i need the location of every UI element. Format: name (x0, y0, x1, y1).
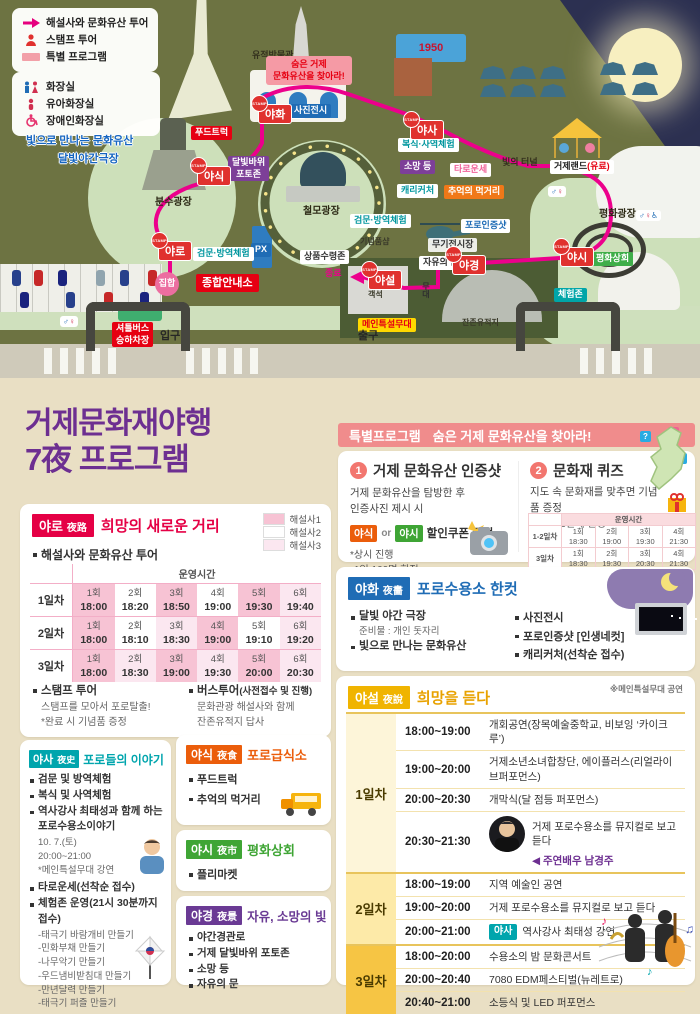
yahwa-section: 야화夜畵 포로수용소 한컷 달빛 야간 극장준비물 : 개인 돗자리빛으로 만나… (336, 567, 695, 671)
map-label: 소망 등 (400, 160, 435, 174)
number-2-icon: 2 (530, 462, 547, 479)
yaseol-program-line: 거제소년소녀합창단, 에이플러스(리얼라이브퍼포먼스) (489, 755, 681, 783)
yaro-corner-cell (30, 564, 73, 584)
session-label: 2회 (596, 549, 629, 558)
legend-facility-items: 화장실유아화장실장애인화장실 (22, 79, 150, 129)
legend-swatch (263, 526, 285, 538)
gift-icon (667, 493, 687, 513)
session-time: 20:30 (280, 666, 321, 682)
yaro-label-row: 1일차1회2회3회4회5회6회 (30, 584, 321, 601)
stamp-tour-title: 스탬프 투어 (32, 682, 178, 698)
session-time: 21:30 (663, 537, 696, 546)
yahwa-section-badge: 야화夜畵 (348, 577, 410, 600)
legend-swatch (263, 539, 285, 551)
session-label: 5회 (238, 617, 279, 634)
map-label: 상품수령존 (300, 250, 349, 264)
yasik-section-badge: 야식夜食 (186, 745, 242, 764)
yasik-section: 야식夜食 포로급식소 푸드트럭추억의 먹거리 (176, 735, 331, 825)
venue-map: 1950 ♂♀ ♂♀ ♂♀ ♂♀♿ 해설사와 문화유산 투어스탬프 투어특별 프… (0, 0, 700, 378)
map-label: 빛으로 만나는 문화유산 (26, 134, 133, 148)
quiz-session-cell: 4회21:30 (662, 526, 696, 548)
map-label: 사진전시 (290, 104, 331, 118)
person-icon (22, 34, 40, 46)
bus-tour-line2: 잔존유적지 답사 (197, 715, 328, 730)
session-time: 18:00 (73, 600, 115, 617)
yaro-time-row: 18:0018:1018:3019:0019:1019:20 (30, 633, 321, 650)
pinwheel-icon (132, 935, 168, 981)
map-stamp: STAMP야경 (452, 255, 486, 275)
yagyeong-section-title: 자유, 소망의 빛 (247, 906, 326, 925)
yaseol-time: 20:00~21:00 (396, 926, 489, 938)
yaro-time-row: 18:0018:3019:0019:3020:0020:30 (30, 666, 321, 682)
map-label: 입구 (160, 329, 180, 343)
wheelchair-icon (22, 114, 40, 127)
session-label: 1회 (73, 617, 115, 634)
map-label: 추억의 먹거리 (444, 185, 504, 199)
special-header-title: 숨은 거제 문화유산을 찾아라! (433, 426, 592, 445)
map-label: 달빛야간극장 (58, 152, 119, 166)
svg-text:♪: ♪ (601, 914, 607, 928)
yaseol-stage-note: ※메인특설무대 공연 (610, 683, 683, 695)
yahwa-item: 캐리커처(선착순 접수) (514, 646, 674, 665)
bus-tour-note: 버스투어(사전접수 및 진행) 문화관광 해설사와 함께 잔존유적지 답사 (188, 682, 328, 730)
session-label: 3회 (156, 650, 197, 667)
map-label: 거제랜드(유료) (550, 160, 614, 174)
session-label: 2회 (115, 584, 156, 601)
yaseol-program: 개회공연(장목예술중학교, 비보잉 ‘카이크루’) (489, 718, 685, 746)
map-label: 캐리커처 (397, 184, 438, 198)
yaseol-row: 20:40~21:00소등식 및 LED 퍼포먼스 (396, 992, 685, 1014)
quiz-table-row: 1-2일차1회18:302회19:003회19:304회21:30 (529, 526, 696, 548)
special-item2-title: 문화재 퀴즈 (553, 460, 624, 481)
session-time: 18:30 (156, 633, 197, 650)
session-label: 1회 (73, 584, 115, 601)
bar-icon (22, 53, 40, 61)
map-label-paid: (유료) (587, 161, 610, 171)
legend-label: 화장실 (46, 79, 75, 96)
stamp-icon: STAMP (251, 95, 268, 112)
session-label: 5회 (238, 650, 279, 667)
quiz-day-cell: 1-2일차 (529, 526, 562, 548)
item-text: 빛으로 만나는 문화유산 (359, 639, 500, 655)
yasa-section: 야사夜史 포로들의 이야기 검문 및 방역체험복식 및 사역체험역사강사 최태성… (20, 740, 171, 985)
session-label: 2회 (596, 527, 629, 536)
map-label: 평화광장 (599, 208, 636, 221)
session-time: 19:30 (197, 666, 238, 682)
yaseol-row: 18:00~19:00지역 예술인 공연 (396, 874, 685, 897)
arrow-icon (22, 18, 40, 28)
number-1-icon: 1 (350, 462, 367, 479)
map-label: 달빛바위 포토존 (228, 156, 269, 181)
yaseol-program: 개막식(달 점등 퍼포먼스) (489, 793, 685, 807)
legend-item: 스탬프 투어 (22, 32, 148, 49)
session-label: 6회 (280, 584, 321, 601)
session-time: 19:00 (596, 537, 629, 546)
session-time: 19:00 (156, 666, 197, 682)
yaseol-time: 19:00~20:00 (396, 764, 489, 776)
legend-label: 해설사와 문화유산 투어 (46, 15, 148, 32)
geoje-island-outline (641, 423, 693, 499)
session-time: 19:00 (197, 600, 238, 617)
yaro-day-cell: 2일차 (30, 617, 73, 650)
yasa-item: 타로운세(선착순 접수) (29, 880, 164, 896)
map-label: 종합안내소 (196, 274, 259, 292)
yaro-time-header: 운영시간 (73, 564, 322, 584)
yaro-legend-item: 해설사3 (263, 538, 321, 551)
legend-label: 스탬프 투어 (46, 32, 97, 49)
legend-tour-box: 해설사와 문화유산 투어스탬프 투어특별 프로그램 (12, 8, 158, 72)
item-sub: 준비물 : 개인 돗자리 (359, 625, 500, 639)
legend-item: 해설사와 문화유산 투어 (22, 15, 148, 32)
program-text: 소등식 및 LED 퍼포먼스 (489, 996, 595, 1010)
stamp-icon: STAMP (403, 111, 420, 128)
toilet-icon (22, 81, 40, 93)
yasik-item: 푸드트럭 (188, 771, 261, 791)
program-text: 거제소년소녀합창단, 에이플러스(리얼라이브퍼포먼스) (489, 755, 681, 783)
yaseol-program: 소등식 및 LED 퍼포먼스 (489, 996, 685, 1010)
legend-swatch (263, 513, 285, 525)
session-label: 1회 (73, 650, 115, 667)
quiz-time-header: 운영시간 (562, 514, 696, 526)
session-label: 4회 (663, 549, 696, 558)
stamp-tour-line2: *완료 시 기념품 증정 (41, 715, 178, 730)
map-label: 푸드트럭 (191, 126, 232, 140)
divider (518, 461, 519, 552)
yaro-bullet: 해설사와 문화유산 투어 (32, 546, 158, 563)
item-text: 달빛 야간 극장 (359, 609, 500, 625)
yaseol-section-title: 희망을 듣다 (417, 687, 490, 708)
speaker-photo (136, 836, 168, 874)
item-sub-line: -만년달력 만들기 (38, 984, 164, 998)
map-label: 타로운세 (450, 163, 491, 177)
map-label: 집합 (155, 272, 179, 296)
stamp-icon: STAMP (361, 261, 378, 278)
item-text: 캐리커처(선착순 접수) (523, 646, 674, 665)
session-time: 19:30 (238, 600, 279, 617)
yaseol-time: 18:00~19:00 (396, 879, 489, 891)
yaseol-time: 20:00~20:30 (396, 794, 489, 806)
yaro-day-cell: 3일차 (30, 650, 73, 683)
session-time: 18:00 (73, 666, 115, 682)
item-text: 타로운세(선착순 접수) (38, 880, 164, 896)
map-stamp: STAMP야시 (560, 247, 594, 267)
yahwa-section-title: 포로수용소 한컷 (417, 578, 518, 599)
yaseol-day-cell: 2일차 (346, 874, 396, 944)
map-stamp: STAMP야설 (368, 270, 402, 290)
yagyeong-item: 거제 달빛바위 포토존 (188, 946, 290, 962)
session-time: 19:00 (197, 633, 238, 650)
night-sky-illustration (597, 569, 693, 641)
map-label: 잔존유적지 (462, 318, 499, 328)
stamp-tour-line1: 스탬프를 모아서 포로탈출! (41, 700, 178, 715)
yaro-section: 야로夜路 희망의 새로운 거리 해설사1해설사2해설사3 해설사와 문화유산 투… (20, 504, 331, 737)
session-time: 19:30 (629, 537, 662, 546)
session-label: 4회 (197, 584, 238, 601)
session-time: 19:20 (280, 633, 321, 650)
session-label: 4회 (663, 527, 696, 536)
map-label: 분수광장 (155, 196, 192, 209)
session-time: 18:30 (562, 537, 595, 546)
map-label: 체험존 (554, 288, 587, 302)
item-sub-line: -태극기 퍼즐 만들기 (38, 997, 164, 1011)
map-label: 객석 (368, 290, 383, 300)
session-time: 18:10 (115, 633, 156, 650)
map-stamp: STAMP야식 (197, 166, 231, 186)
yaseol-time: 20:40~21:00 (396, 997, 489, 1009)
session-label: 1회 (562, 549, 595, 558)
map-label: 복식·사역체험 (398, 138, 459, 152)
legend-label: 특별 프로그램 (46, 49, 107, 66)
yaseol-time: 19:00~20:00 (396, 902, 489, 914)
special-item1-desc2: 인증사진 제시 시 (350, 502, 512, 518)
yaseol-row: 20:30~21:30거제 포로수용소를 뮤지컬로 보고 듣다◀ 주연배우 남경… (396, 812, 685, 872)
yaseol-time: 20:30~21:30 (396, 836, 489, 848)
svg-text:♪: ♪ (647, 966, 653, 978)
yaseol-row: 20:00~20:30개막식(달 점등 퍼포먼스) (396, 789, 685, 812)
special-item1-desc1: 거제 문화유산을 탐방한 후 (350, 486, 512, 502)
yaro-label-row: 2일차1회2회3회4회5회6회 (30, 617, 321, 634)
legend-item: 장애인화장실 (22, 113, 104, 130)
stamp-icon: STAMP (553, 238, 570, 255)
yasik-items: 푸드트럭추억의 먹거리 (188, 771, 261, 811)
yaseol-section-badge: 야설夜說 (348, 686, 410, 709)
session-label: 4회 (197, 650, 238, 667)
yaseol-rows: 18:00~19:00개회공연(장목예술중학교, 비보잉 ‘카이크루’)19:0… (396, 714, 685, 872)
yahwa-item: 달빛 야간 극장준비물 : 개인 돗자리 (350, 609, 500, 639)
yaseol-time: 18:00~20:00 (396, 951, 489, 963)
special-header-label: 특별프로그램 (349, 426, 421, 445)
yagyeong-section-badge: 야경夜景 (186, 906, 242, 925)
legend-label: 해설사2 (289, 525, 321, 539)
map-label: 빛의 터널 (502, 157, 538, 169)
yasi-badge: 야시 (395, 525, 422, 542)
yagyeong-item: 자유의 문 (188, 977, 290, 993)
program-extra: ◀ 주연배우 남경주 (532, 854, 681, 868)
or-label: or (381, 528, 391, 539)
legend-tour-items: 해설사와 문화유산 투어스탬프 투어특별 프로그램 (22, 15, 148, 65)
yaseol-row: 19:00~20:00거제소년소녀합창단, 에이플러스(리얼라이브퍼포먼스) (396, 751, 685, 788)
session-label: 2회 (115, 650, 156, 667)
yasi-item: 플리마켓 (188, 866, 237, 882)
yaseol-row: 18:00~19:00개회공연(장목예술중학교, 비보잉 ‘카이크루’) (396, 714, 685, 751)
legend-item: 특별 프로그램 (22, 49, 148, 66)
yaro-section-badge: 야로夜路 (32, 514, 94, 537)
session-time: 19:10 (238, 633, 279, 650)
session-time: 19:40 (280, 600, 321, 617)
item-sub-line: 20:00~21:00 (38, 850, 124, 864)
actor-photo (489, 816, 525, 852)
map-label-main: 거제랜드 (554, 161, 587, 171)
map-label: 검문·방역체험 (193, 247, 254, 261)
yaseol-time: 18:00~19:00 (396, 726, 489, 738)
yaro-label-row: 3일차1회2회3회4회5회6회 (30, 650, 321, 667)
yaseol-program: 거제 포로수용소를 뮤지컬로 보고 듣다◀ 주연배우 남경주 (489, 816, 685, 868)
session-label: 3회 (156, 584, 197, 601)
session-label: 4회 (197, 617, 238, 634)
map-label: 철모광장 (303, 205, 340, 218)
map-label: 검문·방역체험 (350, 214, 411, 228)
legend-facility-box: 화장실유아화장실장애인화장실 (12, 72, 160, 136)
yasa-section-badge: 야사夜史 (29, 750, 79, 768)
map-label: PX (251, 243, 271, 257)
map-stamp: STAMP야화 (258, 104, 292, 124)
session-label: 3회 (156, 617, 197, 634)
session-time: 18:50 (156, 600, 197, 617)
item-text: 체험존 운영(21시 30분까지 접수) (38, 896, 164, 928)
yaseol-program-line: 지역 예술인 공연 (489, 878, 681, 892)
yagyeong-section: 야경夜景 자유, 소망의 빛 야간경관로거제 달빛바위 포토존소망 등자유의 문 (176, 896, 331, 985)
session-label: 1회 (562, 527, 595, 536)
quiz-session-cell: 2회19:00 (595, 526, 629, 548)
yahwa-col1: 달빛 야간 극장준비물 : 개인 돗자리빛으로 만나는 문화유산 (350, 609, 500, 655)
quiz-table-header-row: 운영시간 (529, 514, 696, 526)
program-text: 수용소의 밤 문화콘서트 (489, 950, 591, 964)
yaro-header-row: 운영시간 (30, 564, 321, 584)
session-time: 20:00 (238, 666, 279, 682)
yasa-section-title: 포로들의 이야기 (83, 751, 164, 768)
quiz-session-cell: 3회19:30 (629, 526, 663, 548)
yaro-day-cell: 1일차 (30, 584, 73, 617)
stamp-tour-note: 스탬프 투어 스탬프를 모아서 포로탈출! *완료 시 기념품 증정 (32, 682, 178, 730)
legend-label: 유아화장실 (46, 96, 94, 113)
yasi-section: 야시夜市 평화상회 플리마켓 (176, 830, 331, 891)
bus-tour-line1: 문화관광 해설사와 함께 (197, 700, 328, 715)
session-label: 3회 (629, 527, 662, 536)
yasik-section-title: 포로급식소 (247, 745, 307, 764)
map-label: 출구 (358, 329, 378, 343)
map-label: 기념품샵 (360, 237, 389, 247)
yasik-badge: 야식 (350, 525, 377, 542)
yaseol-program-line: 개막식(달 점등 퍼포먼스) (489, 793, 681, 807)
legend-item: 유아화장실 (22, 96, 94, 113)
food-truck-icon (279, 791, 323, 819)
session-time: 18:00 (73, 633, 115, 650)
yagyeong-item: 야간경관로 (188, 930, 290, 946)
map-stamp: STAMP야사 (410, 120, 444, 140)
yasi-items: 플리마켓 (188, 866, 237, 882)
quiz-session-cell: 1회18:30 (562, 526, 596, 548)
session-label: 3회 (629, 549, 662, 558)
poster-root: { "map": { "stamp_word": "STAMP", "banne… (0, 0, 700, 990)
yaseol-time: 20:00~20:40 (396, 974, 489, 986)
program-text: 개막식(달 점등 퍼포먼스) (489, 793, 598, 807)
program-text: 지역 예술인 공연 (489, 878, 562, 892)
map-label: 숨은 거제 문화유산을 찾아라! (266, 56, 352, 85)
quiz-schedule-table: 운영시간1-2일차1회18:302회19:003회19:304회21:303일차… (528, 513, 696, 570)
yaseol-day-group: 1일차18:00~19:00개회공연(장목예술중학교, 비보잉 ‘카이크루’)1… (346, 714, 685, 874)
item-sub-line: *메인특설무대 강연 (38, 864, 124, 878)
legend-label: 장애인화장실 (46, 113, 104, 130)
camera-icon (458, 519, 510, 557)
stamp-icon: STAMP (151, 232, 168, 249)
map-label: 무대 (420, 282, 430, 298)
yasik-item: 추억의 먹거리 (188, 791, 261, 811)
yaro-schedule-table: 운영시간1일차1회2회3회4회5회6회18:0018:2018:5019:001… (30, 564, 321, 682)
session-label: 6회 (280, 617, 321, 634)
yaro-legend-item: 해설사1 (263, 512, 321, 525)
special-item1-title: 거제 문화유산 인증샷 (373, 460, 501, 481)
item-sub-line: 10. 7.(토) (38, 836, 124, 850)
bus-tour-title: 버스투어(사전접수 및 진행) (188, 682, 328, 698)
stamp-icon: STAMP (190, 157, 207, 174)
session-label: 6회 (280, 650, 321, 667)
program-text: 개회공연(장목예술중학교, 비보잉 ‘카이크루’) (489, 718, 681, 746)
item-text: 역사강사 최태성과 함께 하는 포로수용소이야기 (38, 804, 164, 836)
yaseol-section: 야설夜說 희망을 듣다 ※메인특설무대 공연 1일차18:00~19:00개회공… (336, 676, 695, 985)
map-label: 종료 (325, 268, 342, 280)
yaro-legend: 해설사1해설사2해설사3 (263, 512, 321, 551)
musicians-illustration: ♪♫♪ (597, 903, 693, 981)
yaro-legend-item: 해설사2 (263, 525, 321, 538)
yasi-section-title: 평화상회 (247, 840, 295, 859)
yaseol-day-cell: 1일차 (346, 714, 396, 872)
program-text: 거제 포로수용소를 뮤지컬로 보고 듣다 (532, 820, 681, 848)
yaro-time-row: 18:0018:2018:5019:0019:3019:40 (30, 600, 321, 617)
session-label: 2회 (115, 617, 156, 634)
yahwa-item: 빛으로 만나는 문화유산 (350, 639, 500, 655)
legend-item: 화장실 (22, 79, 75, 96)
legend-label: 해설사1 (289, 512, 321, 526)
stamp-icon: STAMP (445, 246, 462, 263)
yaseol-program: 지역 예술인 공연 (489, 878, 685, 892)
map-stamp: STAMP야로 (158, 241, 192, 261)
yaseol-program-line: 소등식 및 LED 퍼포먼스 (489, 996, 681, 1010)
yaro-section-title: 희망의 새로운 거리 (101, 515, 220, 536)
yagyeong-items: 야간경관로거제 달빛바위 포토존소망 등자유의 문 (188, 930, 290, 993)
item-text: 복식 및 사역체험 (38, 788, 164, 804)
baby-icon (22, 98, 40, 110)
special-program-box: 1 거제 문화유산 인증샷 거제 문화유산을 탐방한 후 인증사진 제시 시 야… (338, 451, 695, 562)
session-label: 5회 (238, 584, 279, 601)
yaseol-program-line: 거제 포로수용소를 뮤지컬로 보고 듣다 (489, 816, 681, 852)
yasa-item: 검문 및 방역체험 (29, 772, 164, 788)
quiz-corner-cell (529, 514, 562, 526)
map-label: 포로인증샷 (461, 219, 510, 233)
legend-label: 해설사3 (289, 538, 321, 552)
yasa-item: 복식 및 사역체험 (29, 788, 164, 804)
yasa-badge: 야사 (489, 924, 517, 940)
item-text: 검문 및 방역체험 (38, 772, 164, 788)
yaseol-program-line: 개회공연(장목예술중학교, 비보잉 ‘카이크루’) (489, 718, 681, 746)
yaseol-day-cell: 3일차 (346, 946, 396, 1014)
yaseol-program: 거제소년소녀합창단, 에이플러스(리얼라이브퍼포먼스) (489, 755, 685, 783)
yasi-section-badge: 야시夜市 (186, 840, 242, 859)
map-label: 셔틀버스 승하차장 (112, 322, 153, 347)
svg-text:♫: ♫ (685, 922, 693, 936)
yagyeong-item: 소망 등 (188, 962, 290, 978)
session-time: 18:30 (115, 666, 156, 682)
map-label: 평화상회 (592, 252, 633, 266)
page-title-line2: 7夜 프로그램 (25, 434, 189, 479)
session-time: 18:20 (115, 600, 156, 617)
